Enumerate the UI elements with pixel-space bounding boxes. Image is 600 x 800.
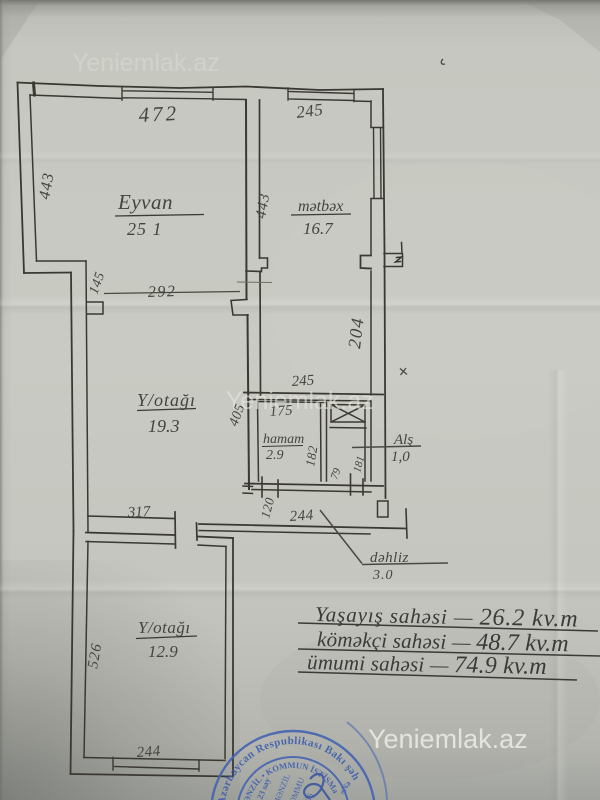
svg-text:292: 292 — [148, 283, 177, 301]
svg-text:317: 317 — [126, 504, 152, 521]
svg-text:Y/otağı: Y/otağı — [137, 390, 196, 410]
svg-text:12.9: 12.9 — [148, 642, 178, 661]
svg-text:3.0: 3.0 — [372, 568, 394, 583]
svg-text:Yeniemlak.az: Yeniemlak.az — [72, 49, 220, 77]
svg-text:19.3: 19.3 — [148, 416, 180, 436]
svg-text:Yeniemlak.az: Yeniemlak.az — [226, 387, 374, 415]
svg-text:hamam: hamam — [263, 432, 304, 447]
svg-text:16.7: 16.7 — [303, 219, 334, 238]
svg-text:Eyvan: Eyvan — [117, 190, 173, 214]
svg-text:245: 245 — [291, 372, 315, 390]
svg-text:dəhliz: dəhliz — [370, 550, 409, 566]
svg-text:244: 244 — [136, 743, 161, 761]
svg-text:Y/otağı: Y/otağı — [138, 618, 191, 637]
svg-text:Yeniemlak.az: Yeniemlak.az — [368, 724, 528, 754]
svg-text:25 1: 25 1 — [127, 219, 163, 239]
svg-text:245: 245 — [295, 100, 324, 122]
svg-text:mətbəx: mətbəx — [298, 198, 343, 215]
svg-text:204: 204 — [344, 316, 368, 350]
svg-text:175: 175 — [269, 402, 293, 420]
svg-text:Alş: Alş — [393, 432, 413, 448]
svg-text:2.9: 2.9 — [266, 448, 284, 463]
svg-text:244: 244 — [289, 507, 314, 525]
svg-text:1,0: 1,0 — [391, 449, 410, 465]
svg-text:472: 472 — [138, 101, 180, 127]
